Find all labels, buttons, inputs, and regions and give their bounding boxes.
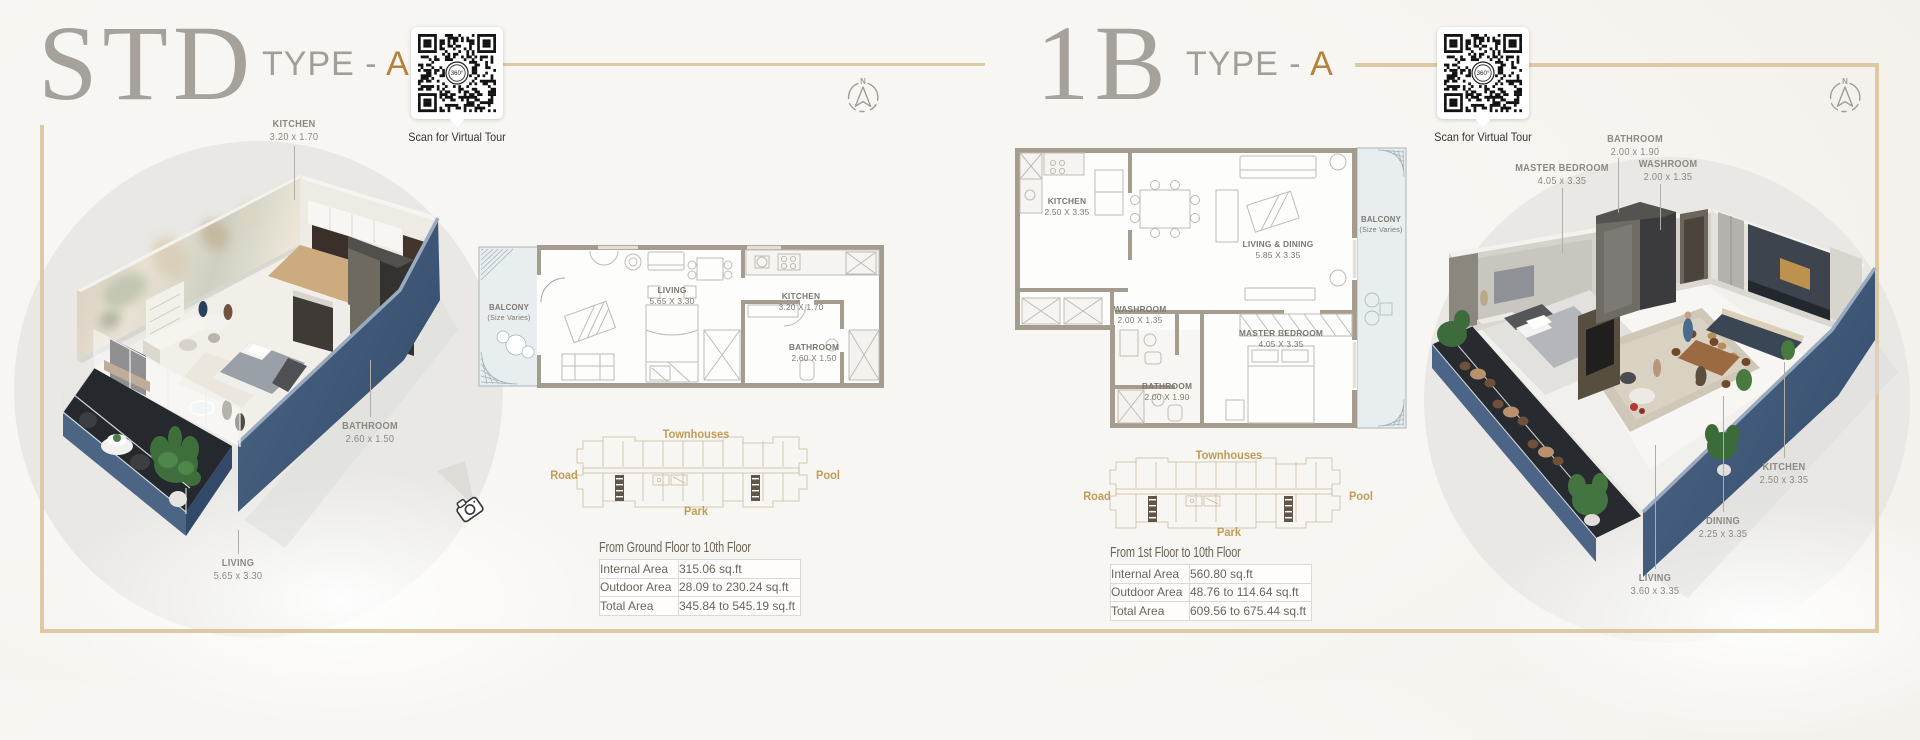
svg-text:3.20 X 1.70: 3.20 X 1.70: [778, 302, 823, 312]
svg-text:WASHROOM: WASHROOM: [1114, 304, 1167, 314]
svg-text:BATHROOM: BATHROOM: [789, 342, 839, 352]
svg-text:2.50 X 3.35: 2.50 X 3.35: [1044, 207, 1089, 217]
svg-text:(Size Varies): (Size Varies): [1359, 225, 1402, 234]
svg-text:2.00 X 1.90: 2.00 X 1.90: [1144, 392, 1189, 402]
svg-text:360°: 360°: [1477, 70, 1490, 77]
svg-text:KITCHEN: KITCHEN: [782, 291, 821, 301]
svg-text:BATHROOM: BATHROOM: [1142, 381, 1192, 391]
svg-text:LIVING: LIVING: [657, 285, 686, 295]
svg-text:4.05 X 3.35: 4.05 X 3.35: [1258, 339, 1303, 349]
svg-text:KITCHEN: KITCHEN: [1048, 196, 1087, 206]
svg-text:N: N: [860, 77, 866, 86]
svg-text:5.65 X 3.30: 5.65 X 3.30: [649, 296, 694, 306]
svg-text:N: N: [1842, 77, 1848, 86]
svg-text:BALCONY: BALCONY: [1361, 215, 1402, 224]
svg-text:2.00 X 1.35: 2.00 X 1.35: [1117, 315, 1162, 325]
svg-text:360°: 360°: [451, 70, 464, 77]
svg-text:5.85 X 3.35: 5.85 X 3.35: [1255, 250, 1300, 260]
svg-text:MASTER BEDROOM: MASTER BEDROOM: [1239, 328, 1323, 338]
svg-text:LIVING & DINING: LIVING & DINING: [1243, 239, 1314, 249]
svg-text:2.60 X 1.50: 2.60 X 1.50: [791, 353, 836, 363]
svg-text:(Size Varies): (Size Varies): [487, 313, 530, 322]
svg-text:BALCONY: BALCONY: [489, 303, 530, 312]
